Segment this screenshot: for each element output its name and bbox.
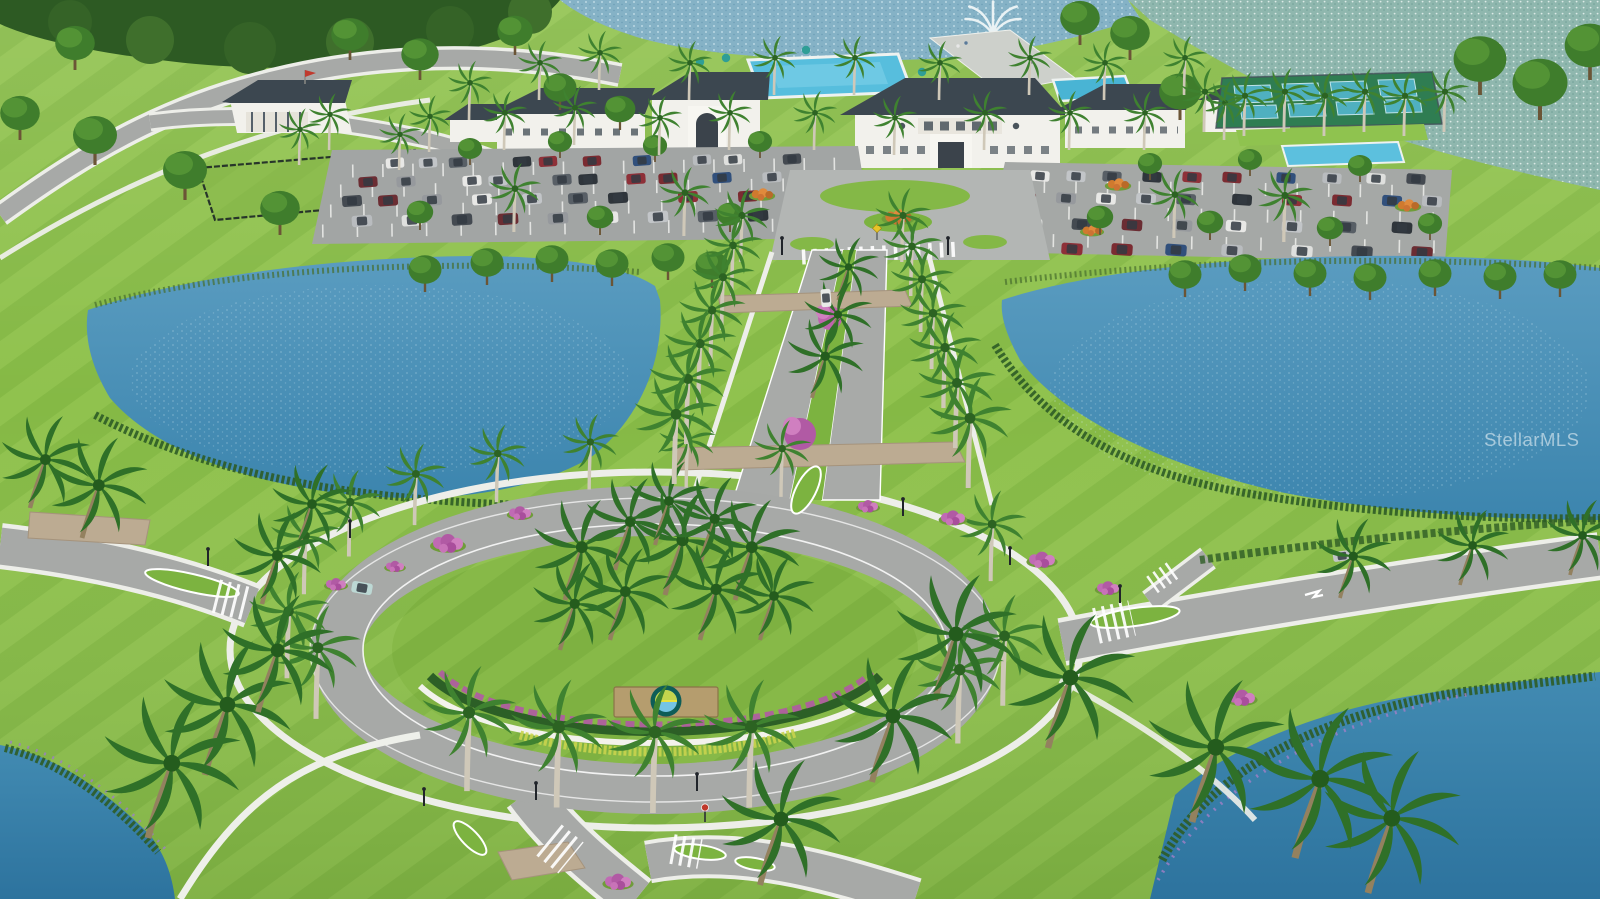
parked-car: [1225, 220, 1246, 233]
parked-car: [1056, 192, 1077, 204]
car-on-boulevard: [820, 289, 831, 308]
parked-car: [1406, 173, 1426, 185]
parked-car: [782, 153, 801, 164]
parked-car: [1096, 192, 1117, 204]
parked-car: [626, 173, 646, 185]
parked-car: [547, 212, 568, 225]
parked-car: [608, 192, 629, 204]
aerial-rendering: StellarMLS: [0, 0, 1600, 899]
parked-car: [472, 193, 493, 205]
parked-car: [1111, 243, 1133, 256]
parked-car: [448, 157, 467, 168]
parked-car: [462, 175, 482, 187]
parked-car: [1291, 245, 1313, 258]
parked-car: [1066, 170, 1086, 182]
parked-car: [692, 154, 711, 165]
parked-car: [451, 213, 472, 226]
parked-car: [1030, 170, 1050, 182]
parked-car: [1182, 171, 1202, 183]
parked-car: [358, 176, 378, 188]
parked-car: [1165, 243, 1187, 256]
parked-car: [1061, 242, 1083, 255]
parked-car: [552, 174, 572, 186]
parked-car: [723, 154, 742, 165]
parked-car: [385, 157, 404, 168]
monument-sign: [614, 686, 718, 718]
parked-car: [568, 192, 589, 204]
parked-car: [1322, 172, 1342, 184]
parked-car: [1391, 221, 1412, 234]
parked-car: [1232, 194, 1253, 206]
parked-car: [697, 210, 718, 223]
scene-canvas: [0, 0, 1600, 899]
parked-car: [351, 215, 372, 228]
courtside-pool: [1282, 142, 1404, 166]
parked-car: [378, 194, 399, 206]
parked-car: [1121, 219, 1142, 232]
parked-car: [578, 173, 598, 185]
parked-car: [538, 156, 557, 167]
parked-car: [1422, 195, 1443, 207]
parked-car: [512, 156, 531, 167]
parked-car: [762, 171, 782, 183]
parked-car: [1222, 172, 1242, 184]
parked-car: [418, 157, 437, 168]
parked-car: [632, 155, 651, 166]
parking-lot-right: [985, 162, 1452, 262]
parked-car: [1366, 173, 1386, 185]
parked-car: [712, 172, 732, 184]
parked-car: [342, 195, 363, 207]
parked-car: [582, 155, 601, 166]
parked-car: [396, 176, 416, 188]
parked-car: [1332, 194, 1353, 206]
parked-car: [647, 210, 668, 223]
